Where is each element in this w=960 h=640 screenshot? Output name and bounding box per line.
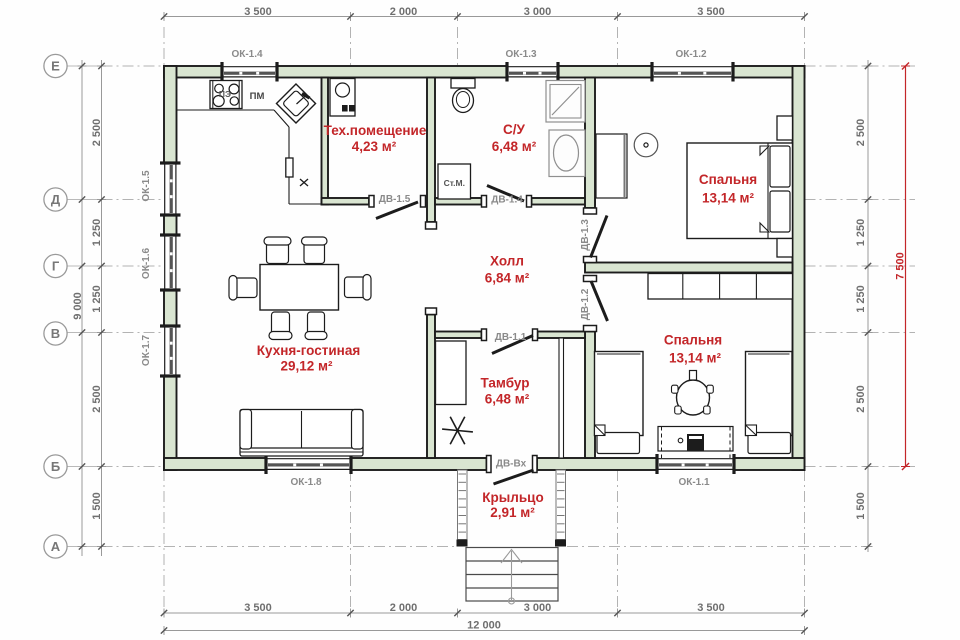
svg-text:ДВ-1.1: ДВ-1.1: [495, 332, 527, 343]
svg-text:3 000: 3 000: [524, 602, 552, 614]
svg-text:ОК-1.7: ОК-1.7: [141, 335, 152, 367]
svg-text:4,23 м²: 4,23 м²: [352, 139, 397, 154]
svg-text:6,84 м²: 6,84 м²: [485, 271, 530, 286]
svg-text:ОК-1.4: ОК-1.4: [231, 49, 263, 60]
svg-text:ОК-1.3: ОК-1.3: [505, 49, 537, 60]
svg-text:В: В: [51, 326, 60, 341]
svg-text:2 000: 2 000: [390, 6, 418, 18]
svg-text:Кухня-гостиная: Кухня-гостиная: [257, 343, 360, 358]
svg-text:2 500: 2 500: [855, 119, 867, 147]
svg-text:1 500: 1 500: [91, 492, 103, 520]
svg-text:ОК-1.8: ОК-1.8: [290, 477, 322, 488]
svg-text:6,48 м²: 6,48 м²: [492, 139, 537, 154]
svg-text:1 250: 1 250: [855, 219, 867, 247]
svg-text:2,91 м²: 2,91 м²: [490, 505, 535, 520]
svg-text:ОК-1.1: ОК-1.1: [678, 477, 710, 488]
svg-text:3 500: 3 500: [697, 6, 725, 18]
svg-text:3 000: 3 000: [524, 6, 552, 18]
svg-text:ДВ-1.5: ДВ-1.5: [379, 194, 411, 205]
svg-text:Д: Д: [51, 192, 61, 207]
svg-text:Е: Е: [51, 59, 60, 74]
svg-text:3 500: 3 500: [697, 602, 725, 614]
svg-text:3 500: 3 500: [244, 6, 272, 18]
svg-text:Тамбур: Тамбур: [481, 376, 530, 391]
svg-text:ДВ-Вх: ДВ-Вх: [496, 459, 527, 470]
svg-text:ОК-1.2: ОК-1.2: [675, 49, 707, 60]
svg-text:ДВ-1.4: ДВ-1.4: [491, 195, 523, 206]
svg-text:ОК-1.5: ОК-1.5: [141, 170, 152, 202]
svg-text:12 000: 12 000: [467, 620, 501, 632]
svg-text:3 500: 3 500: [244, 602, 272, 614]
svg-text:Б: Б: [51, 459, 60, 474]
svg-text:1 250: 1 250: [855, 285, 867, 313]
svg-text:2 500: 2 500: [855, 385, 867, 413]
svg-text:Тех.помещение: Тех.помещение: [324, 123, 427, 138]
svg-text:ОК-1.6: ОК-1.6: [141, 248, 152, 280]
svg-text:ДВ-1.2: ДВ-1.2: [580, 288, 591, 320]
svg-text:ДВ-1.3: ДВ-1.3: [580, 219, 591, 251]
svg-text:ПЭ: ПЭ: [219, 89, 231, 99]
svg-text:Спальня: Спальня: [699, 172, 757, 187]
svg-text:9 000: 9 000: [72, 292, 84, 320]
svg-text:Спальня: Спальня: [664, 333, 722, 348]
svg-text:2 500: 2 500: [91, 385, 103, 413]
svg-text:13,14 м²: 13,14 м²: [702, 191, 755, 206]
svg-text:7 500: 7 500: [895, 252, 907, 280]
svg-text:Холл: Холл: [490, 254, 524, 269]
svg-text:1 250: 1 250: [91, 219, 103, 247]
svg-text:29,12 м²: 29,12 м²: [280, 359, 333, 374]
svg-text:А: А: [51, 539, 61, 554]
svg-text:6,48 м²: 6,48 м²: [485, 392, 530, 407]
svg-text:С/У: С/У: [503, 122, 526, 137]
svg-text:1 500: 1 500: [855, 492, 867, 520]
svg-text:1 250: 1 250: [91, 285, 103, 313]
svg-text:Г: Г: [52, 259, 60, 274]
svg-text:13,14 м²: 13,14 м²: [669, 351, 722, 366]
svg-text:2 000: 2 000: [390, 602, 418, 614]
svg-text:Крыльцо: Крыльцо: [482, 490, 543, 505]
svg-text:Ст.М.: Ст.М.: [444, 178, 465, 188]
svg-text:ПМ: ПМ: [250, 91, 265, 102]
svg-text:2 500: 2 500: [91, 119, 103, 147]
